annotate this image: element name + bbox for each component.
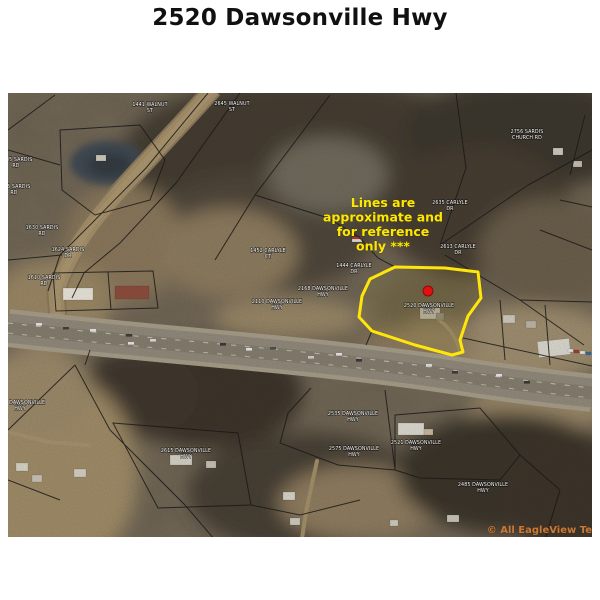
map-disclaimer-line: Lines are [351, 195, 416, 210]
location-marker-icon [423, 286, 433, 296]
aerial-map: 1441 WALNUTST2645 WALNUTST2756 SARDISCHU… [8, 93, 592, 537]
map-disclaimer-line: only *** [356, 239, 410, 254]
texture-overlay [8, 93, 592, 537]
map-disclaimer-line: approximate and [323, 210, 443, 225]
map-image: 1441 WALNUTST2645 WALNUTST2756 SARDISCHU… [8, 93, 592, 537]
eagleview-watermark: © All EagleView Te [487, 525, 592, 536]
map-disclaimer-line: for reference [337, 224, 430, 239]
listing-map-page: 2520 Dawsonville Hwy [0, 0, 600, 600]
page-title: 2520 Dawsonville Hwy [0, 5, 600, 31]
